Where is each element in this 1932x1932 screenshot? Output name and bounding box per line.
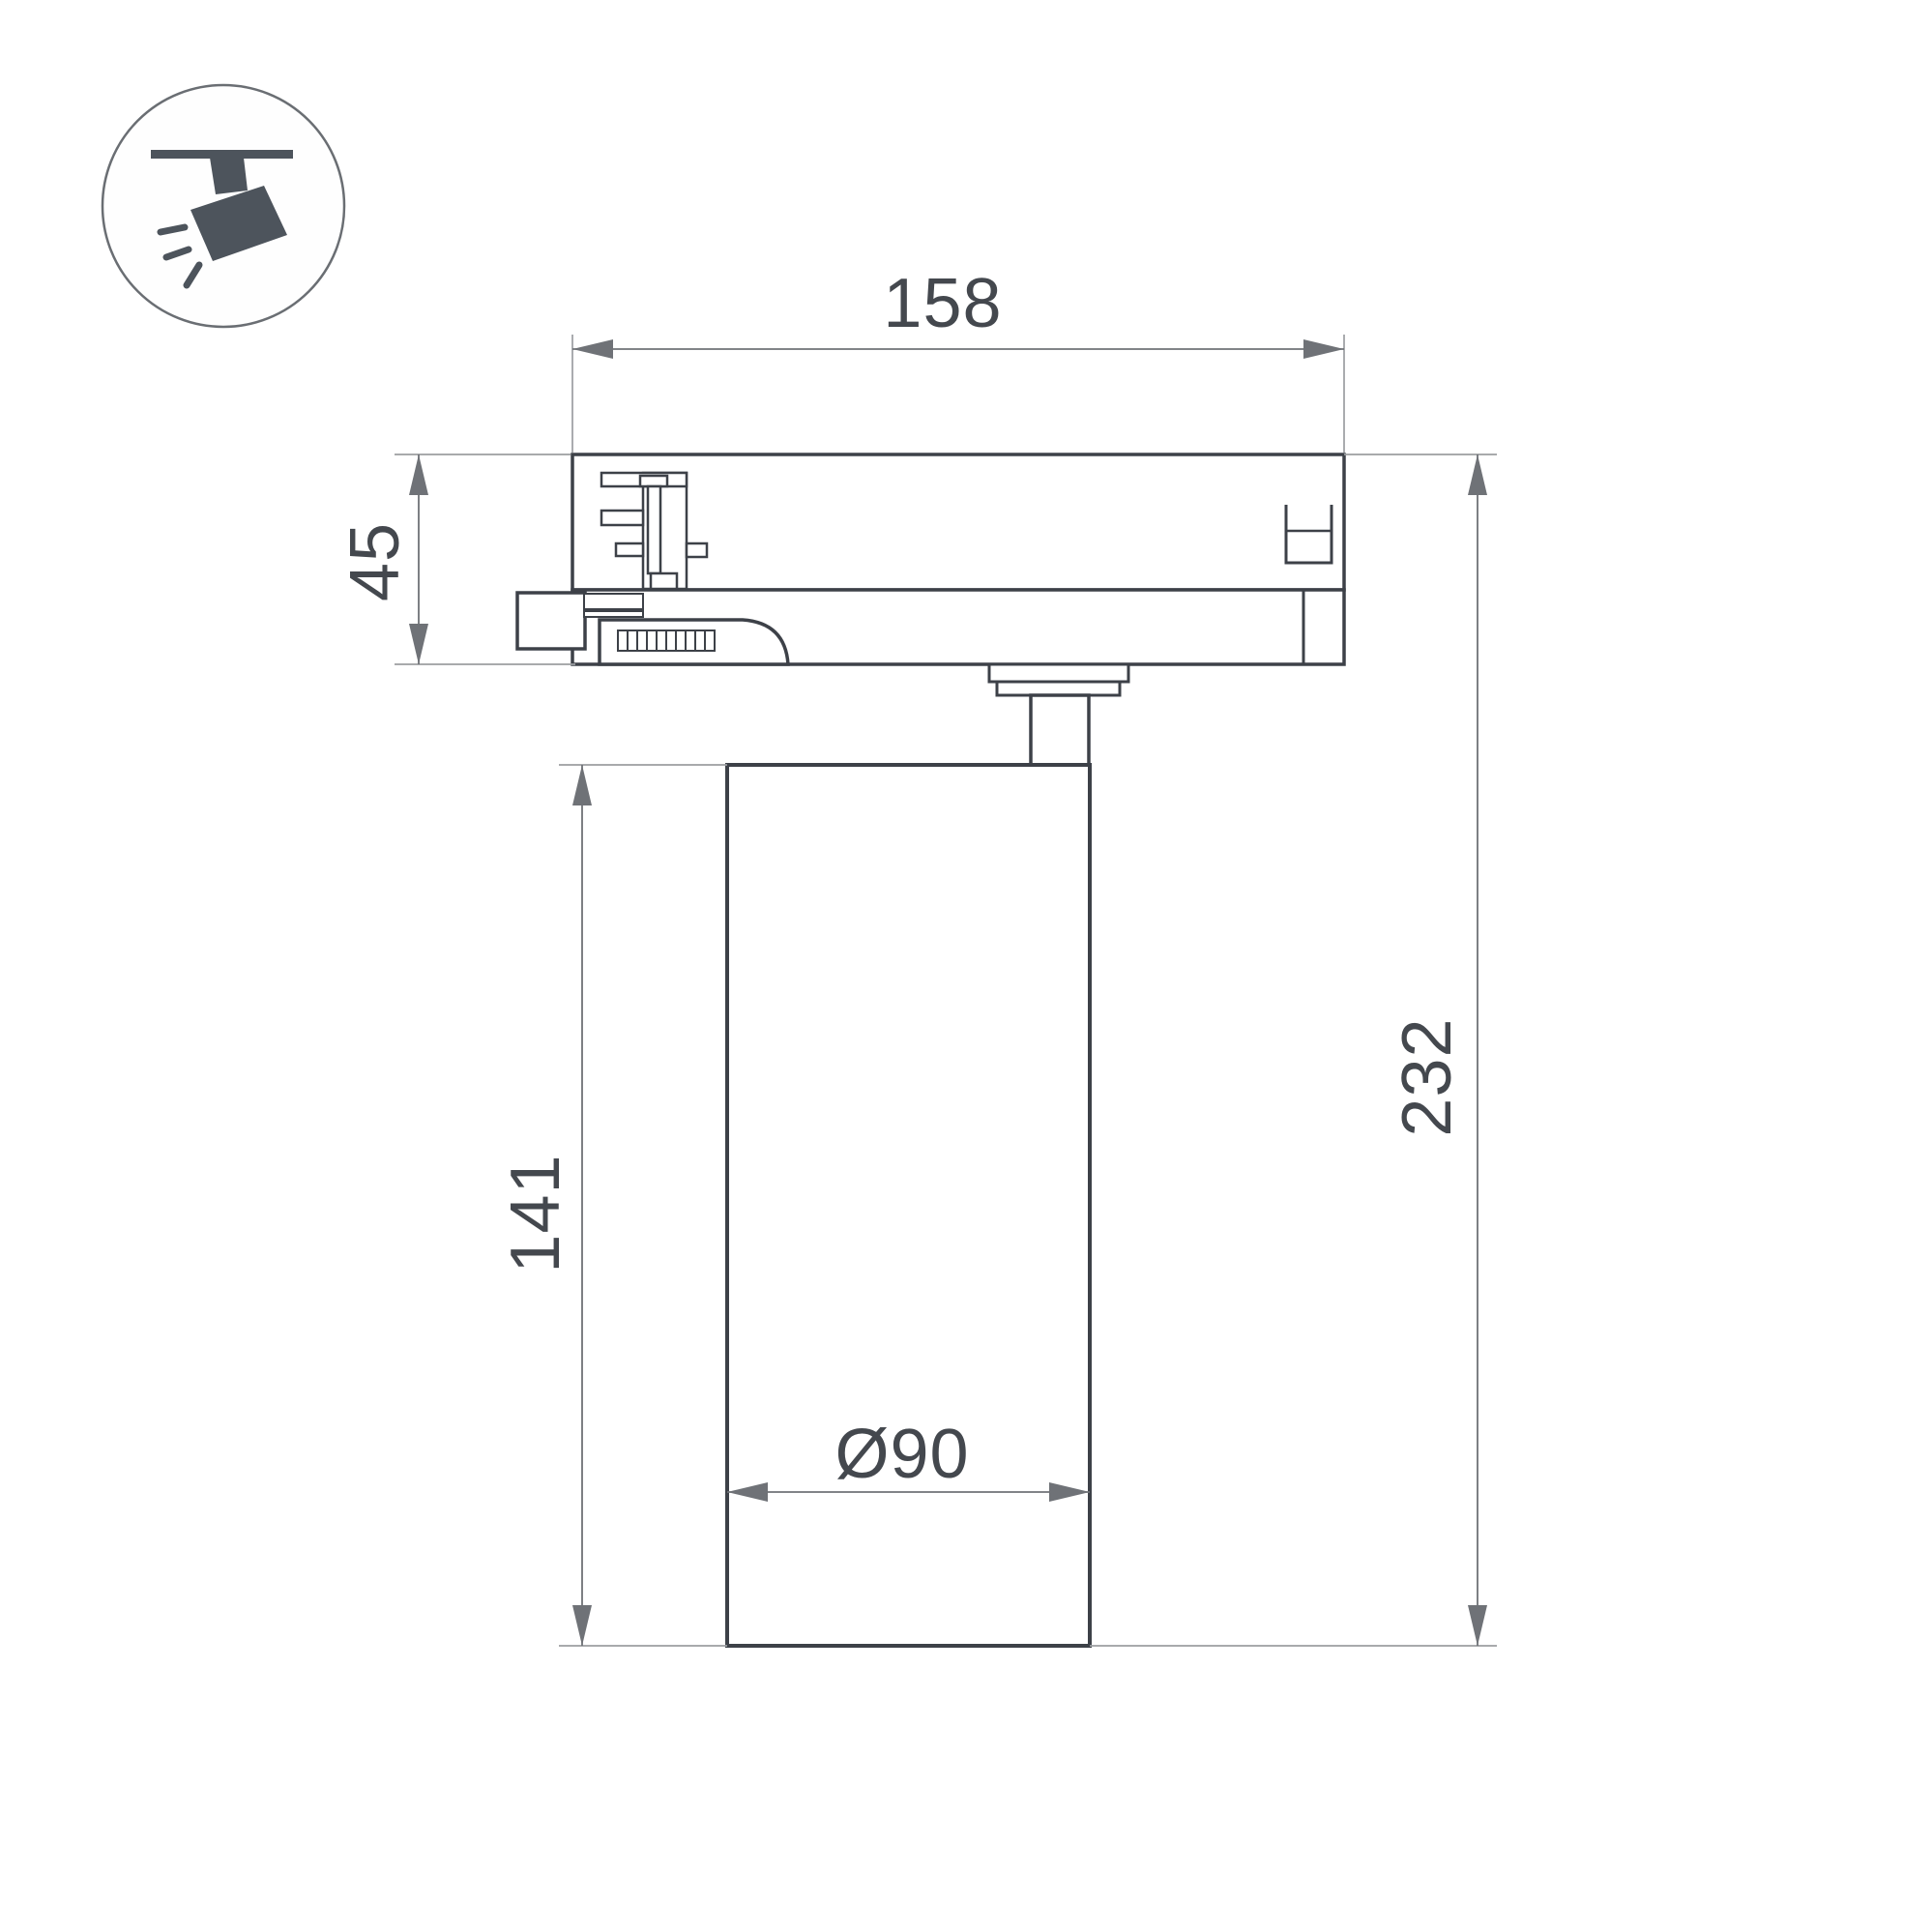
arrowhead-up xyxy=(409,454,428,495)
body-diameter-label: Ø90 xyxy=(834,1416,969,1493)
track-adapter xyxy=(517,454,1344,765)
contact-prong-middle xyxy=(601,511,643,525)
icon-stem xyxy=(210,158,248,194)
dimension-adapter-width: 158 xyxy=(572,265,1344,453)
track-spotlight-icon xyxy=(102,85,344,327)
slider-ribs xyxy=(618,630,715,651)
stem xyxy=(1031,695,1089,765)
arrowhead-down xyxy=(409,624,428,664)
contact-rod xyxy=(648,486,660,573)
adapter-width-label: 158 xyxy=(883,265,1002,342)
stem-flange-lower xyxy=(997,682,1120,695)
latch-block xyxy=(517,593,585,649)
body-height-label: 141 xyxy=(497,1154,574,1273)
lamp-body-cylinder xyxy=(727,765,1090,1646)
drawing-page: 158 45 141 232 Ø90 xyxy=(0,0,1932,1932)
adapter-upper-housing xyxy=(572,454,1344,590)
latch-detail-box xyxy=(584,594,643,609)
arrowhead-up xyxy=(1468,454,1487,495)
adapter-height-label: 45 xyxy=(337,522,414,601)
contact-prong-right xyxy=(687,543,707,557)
arrowhead-down xyxy=(572,1605,592,1646)
arrowhead-right xyxy=(1303,339,1344,359)
dimension-body-height: 141 xyxy=(497,765,727,1646)
arrowhead-left xyxy=(572,339,613,359)
latch-detail-bar xyxy=(584,611,643,617)
arrowhead-down xyxy=(1468,1605,1487,1646)
technical-drawing: 158 45 141 232 Ø90 xyxy=(0,0,1932,1932)
arrowhead-up xyxy=(572,765,592,805)
icon-track-bar xyxy=(151,150,293,159)
contact-rod-foot xyxy=(651,573,677,589)
total-height-label: 232 xyxy=(1389,1017,1466,1136)
contact-prong-bottom xyxy=(616,543,643,556)
contact-rod-cap xyxy=(640,476,667,486)
stem-flange-upper xyxy=(989,664,1128,682)
